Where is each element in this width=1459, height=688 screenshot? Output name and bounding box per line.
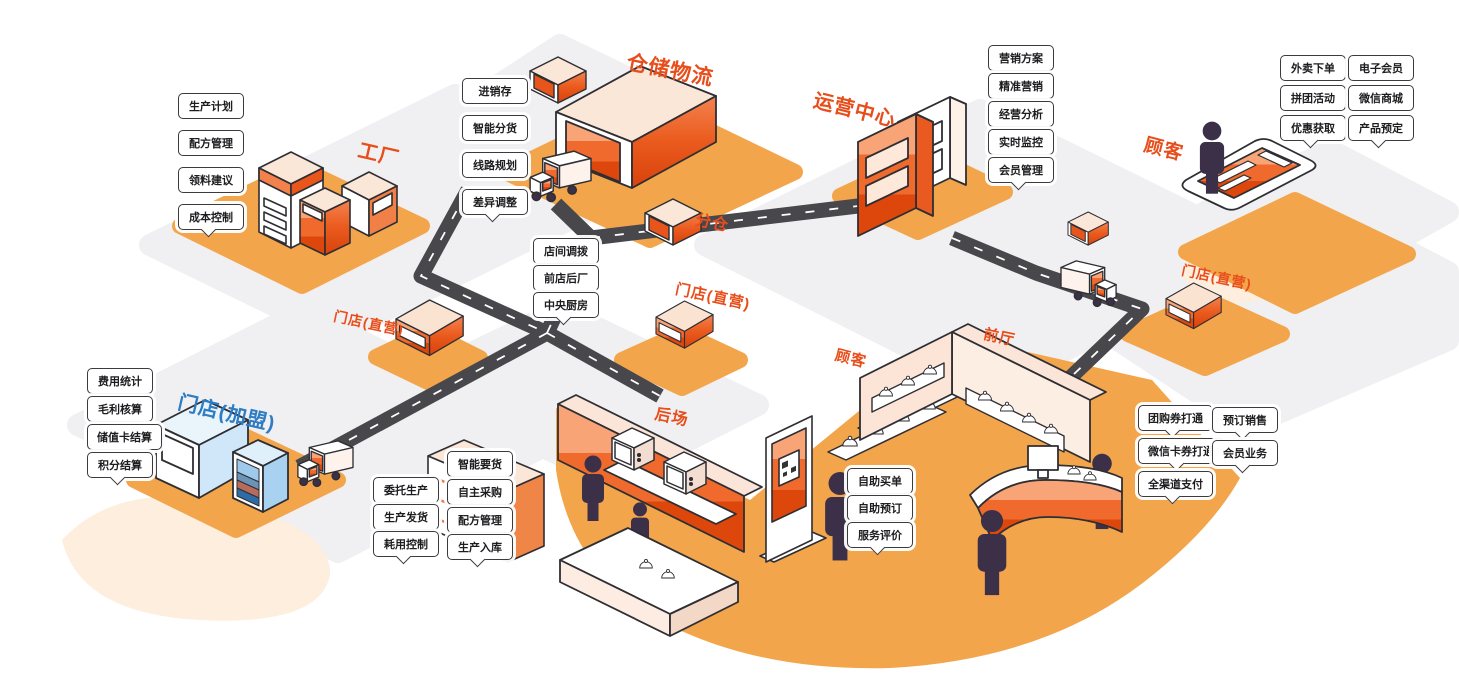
callout-recipe-management: 配方管理	[178, 130, 244, 156]
callout-takeout-order: 外卖下单	[1280, 55, 1346, 81]
callout-front-store-back-factory: 前店后厂	[533, 265, 599, 291]
callout-recipe-management-2: 配方管理	[447, 507, 513, 533]
isometric-scene: 生产计划 配方管理 领料建议 成本控制 进销存 智能分货 线路规划 差异调整 营…	[0, 0, 1459, 688]
callout-wechat-mall: 微信商城	[1348, 85, 1414, 111]
callout-service-review: 服务评价	[847, 522, 913, 548]
callout-inventory: 进销存	[462, 78, 528, 104]
callout-self-procurement: 自主采购	[447, 479, 513, 505]
callout-expense-statistics: 费用统计	[87, 368, 153, 394]
callout-stored-card-settlement: 储值卡结算	[87, 424, 162, 450]
callout-cost-control: 成本控制	[178, 204, 244, 230]
callout-consumption-control: 耗用控制	[373, 531, 439, 557]
callout-points-settlement: 积分结算	[87, 452, 153, 478]
callout-group-buying: 拼团活动	[1280, 85, 1346, 111]
callout-reservation-sales: 预订销售	[1212, 407, 1278, 433]
callout-inter-store-transfer: 店间调拨	[533, 238, 599, 264]
callout-product-reservation: 产品预定	[1348, 115, 1414, 141]
callout-groupon-coupon: 团购券打通	[1138, 405, 1213, 431]
callout-production-warehousing: 生产入库	[447, 534, 513, 560]
callout-smart-ordering: 智能要货	[447, 451, 513, 477]
callout-precision-marketing: 精准营销	[988, 73, 1054, 99]
callout-e-membership: 电子会员	[1348, 55, 1414, 81]
callout-gross-profit-accounting: 毛利核算	[87, 396, 153, 422]
callout-membership-business: 会员业务	[1212, 440, 1278, 466]
callout-smart-allocation: 智能分货	[462, 115, 528, 141]
callout-production-plan: 生产计划	[178, 93, 244, 119]
callout-business-analysis: 经营分析	[988, 101, 1054, 127]
callout-self-reservation: 自助预订	[847, 495, 913, 521]
callout-route-planning: 线路规划	[462, 152, 528, 178]
callout-consigned-production: 委托生产	[373, 477, 439, 503]
callout-coupon-acquisition: 优惠获取	[1280, 115, 1346, 141]
callout-omnichannel-payment: 全渠道支付	[1138, 471, 1213, 497]
callout-production-delivery: 生产发货	[373, 504, 439, 530]
callout-difference-adjustment: 差异调整	[462, 189, 528, 215]
callout-material-advice: 领料建议	[178, 167, 244, 193]
callout-marketing-plan: 营销方案	[988, 45, 1054, 71]
callout-realtime-monitoring: 实时监控	[988, 129, 1054, 155]
callout-central-kitchen: 中央厨房	[533, 292, 599, 318]
callout-member-management: 会员管理	[988, 157, 1054, 183]
callout-self-checkout: 自助买单	[847, 468, 913, 494]
